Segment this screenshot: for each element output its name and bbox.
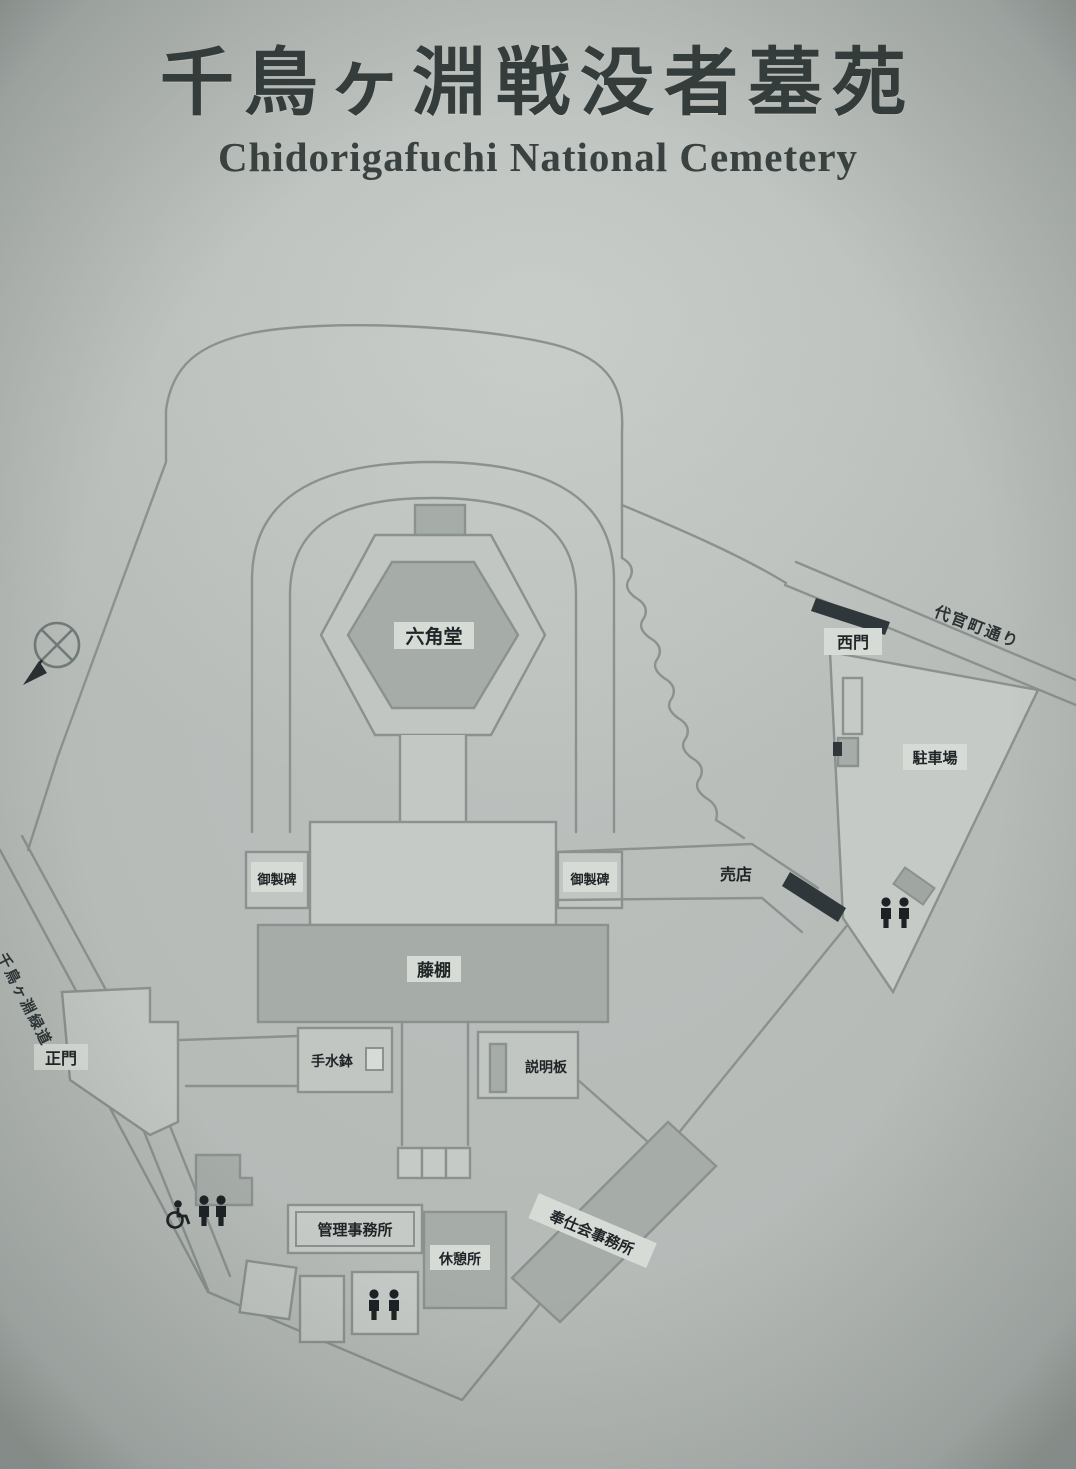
sign-header: 千鳥ヶ淵戦没者墓苑 Chidorigafuchi National Cemete…	[0, 42, 1076, 181]
title-english: Chidorigafuchi National Cemetery	[0, 133, 1076, 181]
water-basin: 手水鉢	[298, 1028, 392, 1092]
service-office: 奉仕会事務所	[512, 1122, 716, 1322]
admin-office-label: 管理事務所	[317, 1221, 392, 1239]
rear-structure	[415, 505, 465, 535]
monument-left: 御製碑	[246, 852, 308, 908]
hexagon-hall: 六角堂	[321, 535, 545, 825]
info-board: 説明板	[478, 1032, 578, 1098]
parking-label: 駐車場	[912, 749, 957, 767]
rest-house: 休憩所	[424, 1212, 506, 1308]
main-gate-label: 正門	[45, 1049, 77, 1068]
trellis: 藤棚	[258, 925, 608, 1022]
cemetery-map-sign: { "sign": { "title_ja": "千鳥ヶ淵戦没者墓苑", "ti…	[0, 0, 1076, 1469]
shop-label: 売店	[720, 865, 752, 884]
steps	[782, 872, 846, 922]
planters	[398, 1148, 470, 1178]
trellis-label: 藤棚	[417, 960, 451, 981]
admin-office: 管理事務所	[288, 1205, 422, 1253]
gate-marker	[833, 742, 842, 756]
site-map: 駐車場 西門 六角堂 御製碑 御製碑	[0, 250, 1076, 1469]
road-west-label: 千鳥ヶ淵緑道	[0, 950, 56, 1049]
title-japanese: 千鳥ヶ淵戦没者墓苑	[0, 42, 1076, 127]
accessible-toilet	[168, 1155, 253, 1228]
central-plaza: 御製碑 御製碑	[246, 822, 622, 925]
parking-area: 駐車場	[830, 652, 1038, 992]
west-gate: 西門	[811, 598, 890, 655]
road-northeast-label: 代官町通り	[931, 602, 1023, 652]
monument-right-label: 御製碑	[569, 872, 609, 888]
hexagon-hall-label: 六角堂	[405, 625, 462, 648]
parking-structure	[843, 678, 862, 734]
info-board-label: 説明板	[525, 1059, 568, 1076]
west-gate-label: 西門	[837, 633, 869, 652]
water-basin-label: 手水鉢	[311, 1053, 354, 1070]
restroom-building	[240, 1261, 418, 1342]
monument-left-label: 御製碑	[256, 872, 296, 888]
compass-icon	[23, 623, 79, 685]
main-gate: 正門	[34, 988, 178, 1135]
rest-house-label: 休憩所	[438, 1251, 481, 1268]
